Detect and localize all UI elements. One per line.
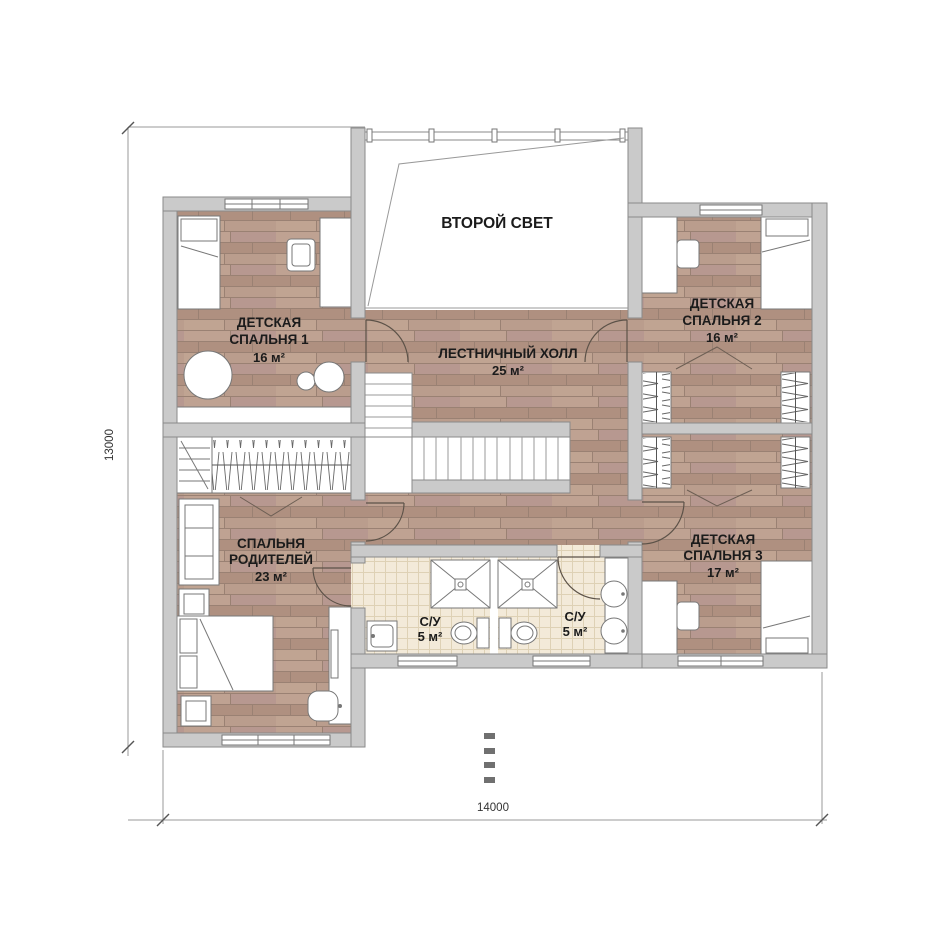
window	[225, 199, 308, 209]
stair-hall-area: 25 м²	[492, 363, 525, 378]
bedroom1-label-line1: ДЕТСКАЯ	[237, 315, 301, 330]
floor-plan-page: ВТОРОЙ СВЕТ ДЕТСКАЯ СПАЛЬНЯ 1 16 м² ЛЕСТ…	[0, 0, 950, 950]
bedroom2-area: 16 м²	[706, 330, 739, 345]
dimension-bottom: 14000	[477, 802, 509, 814]
window	[533, 656, 590, 666]
bedroom1-low-cabinet	[177, 407, 351, 423]
parents-label-line1: СПАЛЬНЯ	[237, 536, 305, 551]
window	[222, 735, 330, 745]
parents-armchair	[308, 691, 338, 721]
bathroom-right-label: С/У	[564, 609, 586, 624]
bedroom1-side-table	[314, 362, 344, 392]
bathroom-right-area: 5 м²	[563, 624, 588, 639]
toilet-right-tank	[499, 618, 511, 648]
dimension-left: 13000	[104, 429, 116, 461]
bathroom-left-label: С/У	[419, 614, 441, 629]
parents-area: 23 м²	[255, 569, 288, 584]
bedroom3-label-line1: ДЕТСКАЯ	[691, 532, 755, 547]
tv-symbol	[331, 630, 338, 678]
toilet-left-tank	[477, 618, 489, 648]
bedroom2-desk	[642, 216, 677, 293]
bedroom2-chair	[677, 240, 699, 268]
section-marker-dashes	[484, 733, 495, 783]
bedroom2-label-line1: ДЕТСКАЯ	[690, 296, 754, 311]
bedroom1-label-line2: СПАЛЬНЯ 1	[229, 332, 309, 347]
bathroom-left-area: 5 м²	[418, 629, 443, 644]
bedroom2-label-line2: СПАЛЬНЯ 2	[682, 313, 761, 328]
bedroom3-area: 17 м²	[707, 565, 740, 580]
window	[700, 205, 762, 215]
bedroom3-label-line2: СПАЛЬНЯ 3	[683, 548, 763, 563]
bedroom1-area: 16 м²	[253, 350, 286, 365]
bedroom3-desk	[642, 581, 677, 655]
window	[398, 656, 457, 666]
bedroom3-chair	[677, 602, 699, 630]
parents-label-line2: РОДИТЕЛЕЙ	[229, 552, 313, 567]
second-light-label: ВТОРОЙ СВЕТ	[441, 214, 553, 232]
bedroom1-side-table-small	[297, 372, 315, 390]
floor-plan-drawing: ВТОРОЙ СВЕТ ДЕТСКАЯ СПАЛЬНЯ 1 16 м² ЛЕСТ…	[0, 0, 950, 950]
bedroom1-desk	[320, 218, 351, 307]
window	[678, 656, 763, 666]
stair-hall-label: ЛЕСТНИЧНЫЙ ХОЛЛ	[438, 346, 577, 361]
bedroom1-rug	[184, 351, 232, 399]
